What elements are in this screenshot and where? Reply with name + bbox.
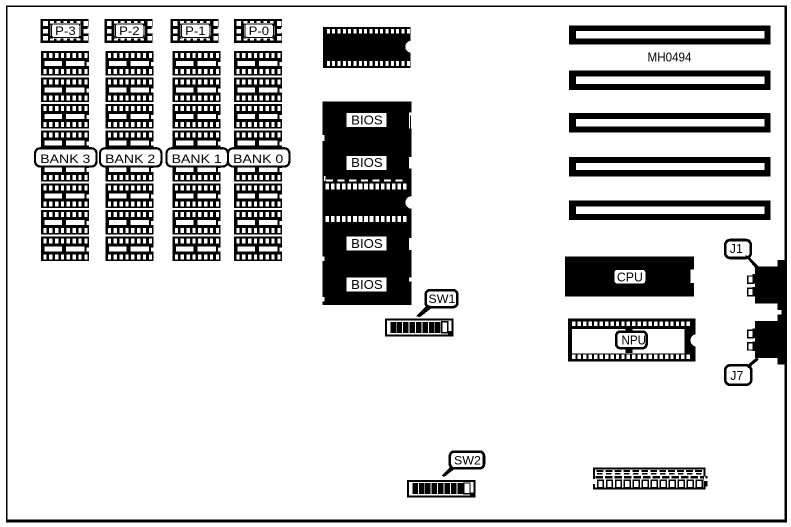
svg-text:BANK 0: BANK 0 [233, 152, 283, 166]
svg-text:P-1: P-1 [185, 26, 206, 38]
svg-text:NPU: NPU [622, 334, 647, 348]
svg-text:SW2: SW2 [454, 453, 481, 467]
svg-text:BIOS: BIOS [351, 112, 383, 127]
svg-text:P-3: P-3 [55, 26, 75, 38]
svg-text:BIOS: BIOS [351, 236, 383, 251]
svg-text:BIOS: BIOS [351, 155, 383, 170]
svg-text:BIOS: BIOS [351, 277, 383, 292]
svg-text:J1: J1 [730, 241, 743, 256]
svg-text:BANK 3: BANK 3 [40, 152, 90, 166]
svg-text:MH0494: MH0494 [648, 50, 692, 65]
svg-text:BANK 1: BANK 1 [172, 152, 222, 166]
svg-text:BANK 2: BANK 2 [105, 152, 155, 166]
svg-text:CPU: CPU [617, 269, 643, 284]
svg-text:P-2: P-2 [119, 26, 140, 38]
svg-text:J7: J7 [730, 368, 743, 383]
svg-text:SW1: SW1 [428, 292, 455, 306]
svg-text:P-0: P-0 [249, 26, 270, 38]
